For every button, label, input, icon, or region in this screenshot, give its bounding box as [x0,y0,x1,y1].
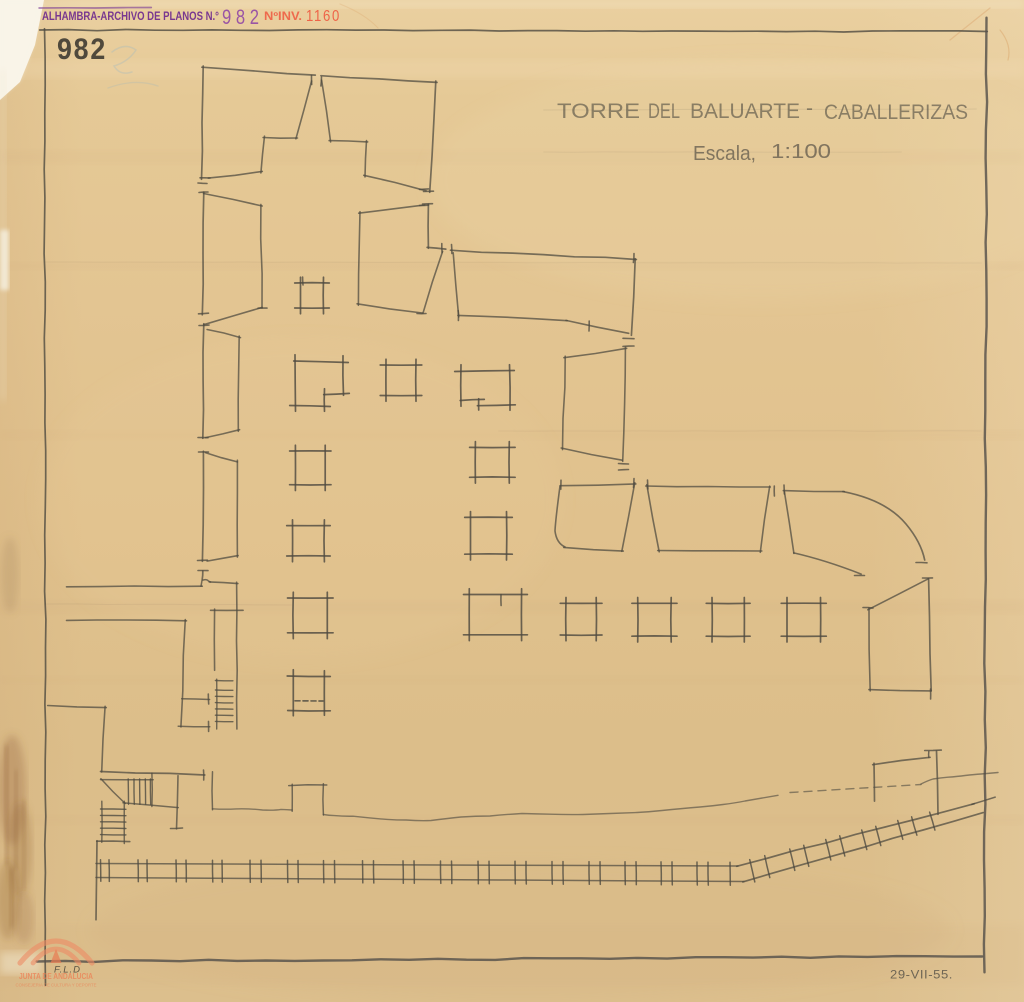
svg-text:NºINV.: NºINV. [264,11,302,23]
svg-text:982: 982 [57,33,107,66]
svg-text:DEL: DEL [648,100,680,123]
svg-text:TORRE: TORRE [557,100,640,123]
svg-text:-: - [806,97,813,120]
svg-text:1160: 1160 [306,8,341,25]
svg-text:ALHAMBRA-ARCHIVO DE PLANOS N.°: ALHAMBRA-ARCHIVO DE PLANOS N.° [42,11,219,23]
svg-text:JUNTA DE ANDALUCIA: JUNTA DE ANDALUCIA [19,971,93,981]
svg-text:BALUARTE: BALUARTE [690,100,800,123]
svg-text:1:100: 1:100 [771,141,831,163]
svg-text:29-VII-55.: 29-VII-55. [890,970,953,982]
svg-text:CABALLERIZAS: CABALLERIZAS [824,101,968,124]
svg-text:9 8 2: 9 8 2 [222,6,259,29]
svg-text:CONSEJERIA DE CULTURA Y DEPORT: CONSEJERIA DE CULTURA Y DEPORTE [16,983,97,989]
svg-text:Escala,: Escala, [693,143,756,165]
